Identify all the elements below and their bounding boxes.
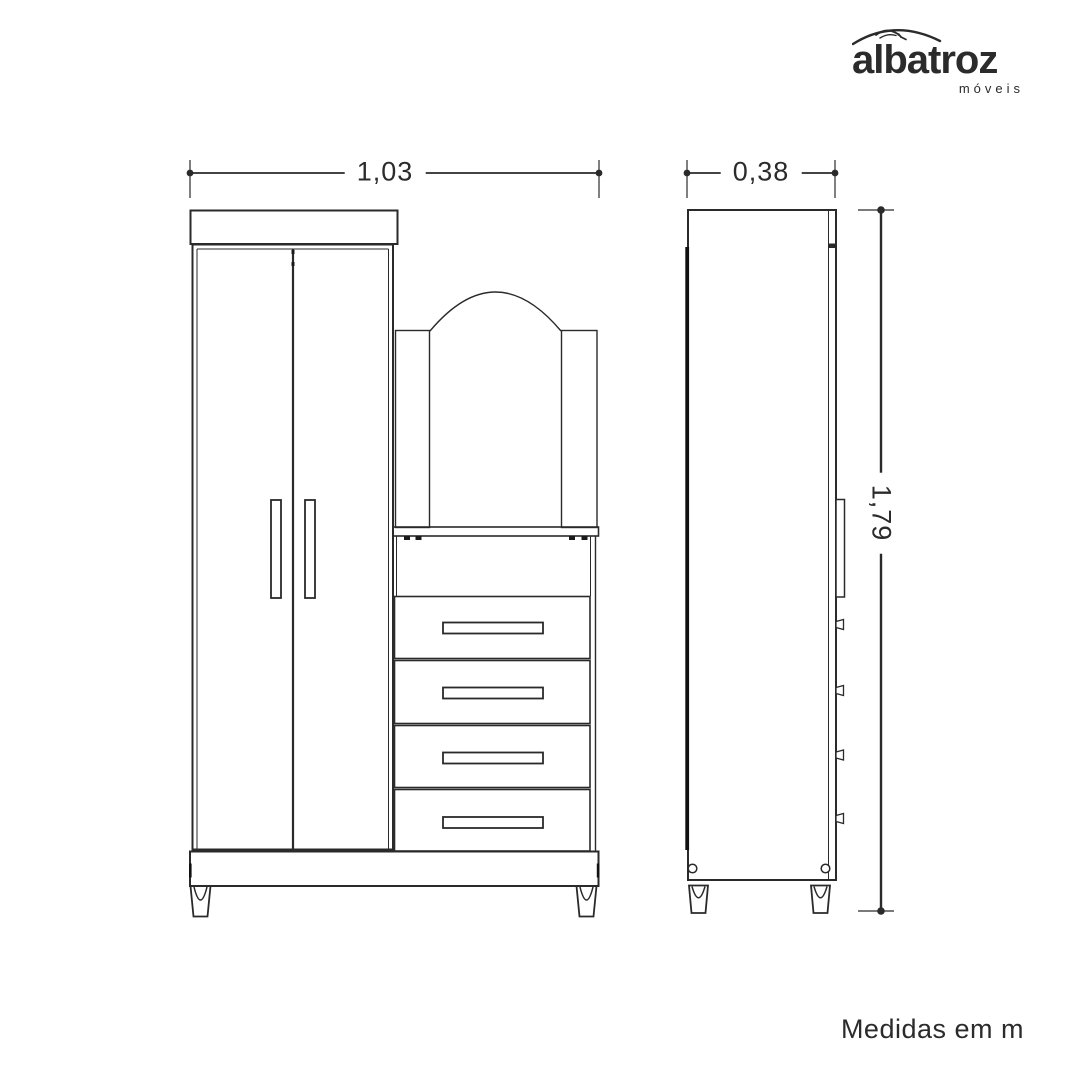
front-view-dresser xyxy=(393,292,599,851)
technical-drawing-canvas: 1,03 0,38 1,79 albatroz móveis Medidas e… xyxy=(0,0,1080,1080)
drawer-1-handle xyxy=(443,623,543,634)
width-dimension-label: 1,03 xyxy=(345,157,426,188)
drawer-2-handle xyxy=(443,688,543,699)
left-door-handle xyxy=(271,500,281,598)
mirror-arch xyxy=(430,292,561,331)
side-screw-right xyxy=(821,864,830,873)
side-drawer-handle-3 xyxy=(836,750,844,760)
side-drawer-handle-4 xyxy=(836,814,844,824)
front-view-base xyxy=(189,852,599,917)
units-note: Medidas em m xyxy=(841,1014,1024,1045)
side-drawer-handle-1 xyxy=(836,620,844,630)
side-drawer-handle-2 xyxy=(836,686,844,696)
depth-dimension-label: 0,38 xyxy=(721,157,802,188)
side-view xyxy=(685,210,844,913)
side-left-foot xyxy=(689,886,708,914)
brand-logo: albatroz móveis xyxy=(852,14,1026,96)
height-dimension-label: 1,79 xyxy=(866,473,897,554)
base-plinth xyxy=(190,852,599,887)
side-right-foot xyxy=(811,886,830,914)
front-right-foot xyxy=(577,886,597,917)
drawer-4-handle xyxy=(443,817,543,828)
mirror-right-upright xyxy=(562,331,598,528)
wardrobe-crown xyxy=(191,211,398,245)
drawer-1 xyxy=(395,597,591,659)
front-left-foot xyxy=(191,886,211,917)
drawer-3 xyxy=(395,726,591,788)
brand-name: albatroz xyxy=(852,40,1026,80)
brand-tagline: móveis xyxy=(852,81,1026,96)
drawer-4 xyxy=(395,790,591,852)
furniture-line-drawing xyxy=(0,0,1080,1080)
front-view-wardrobe xyxy=(191,211,398,850)
side-screw-left xyxy=(688,864,697,873)
side-mirror-profile xyxy=(836,500,845,598)
side-door-edge xyxy=(685,247,689,850)
right-door-handle xyxy=(305,500,315,598)
mirror-left-upright xyxy=(396,331,430,528)
drawer-3-handle xyxy=(443,753,543,764)
dresser-top-shelf xyxy=(393,527,599,536)
drawer-2 xyxy=(395,661,591,724)
side-body xyxy=(688,210,836,880)
